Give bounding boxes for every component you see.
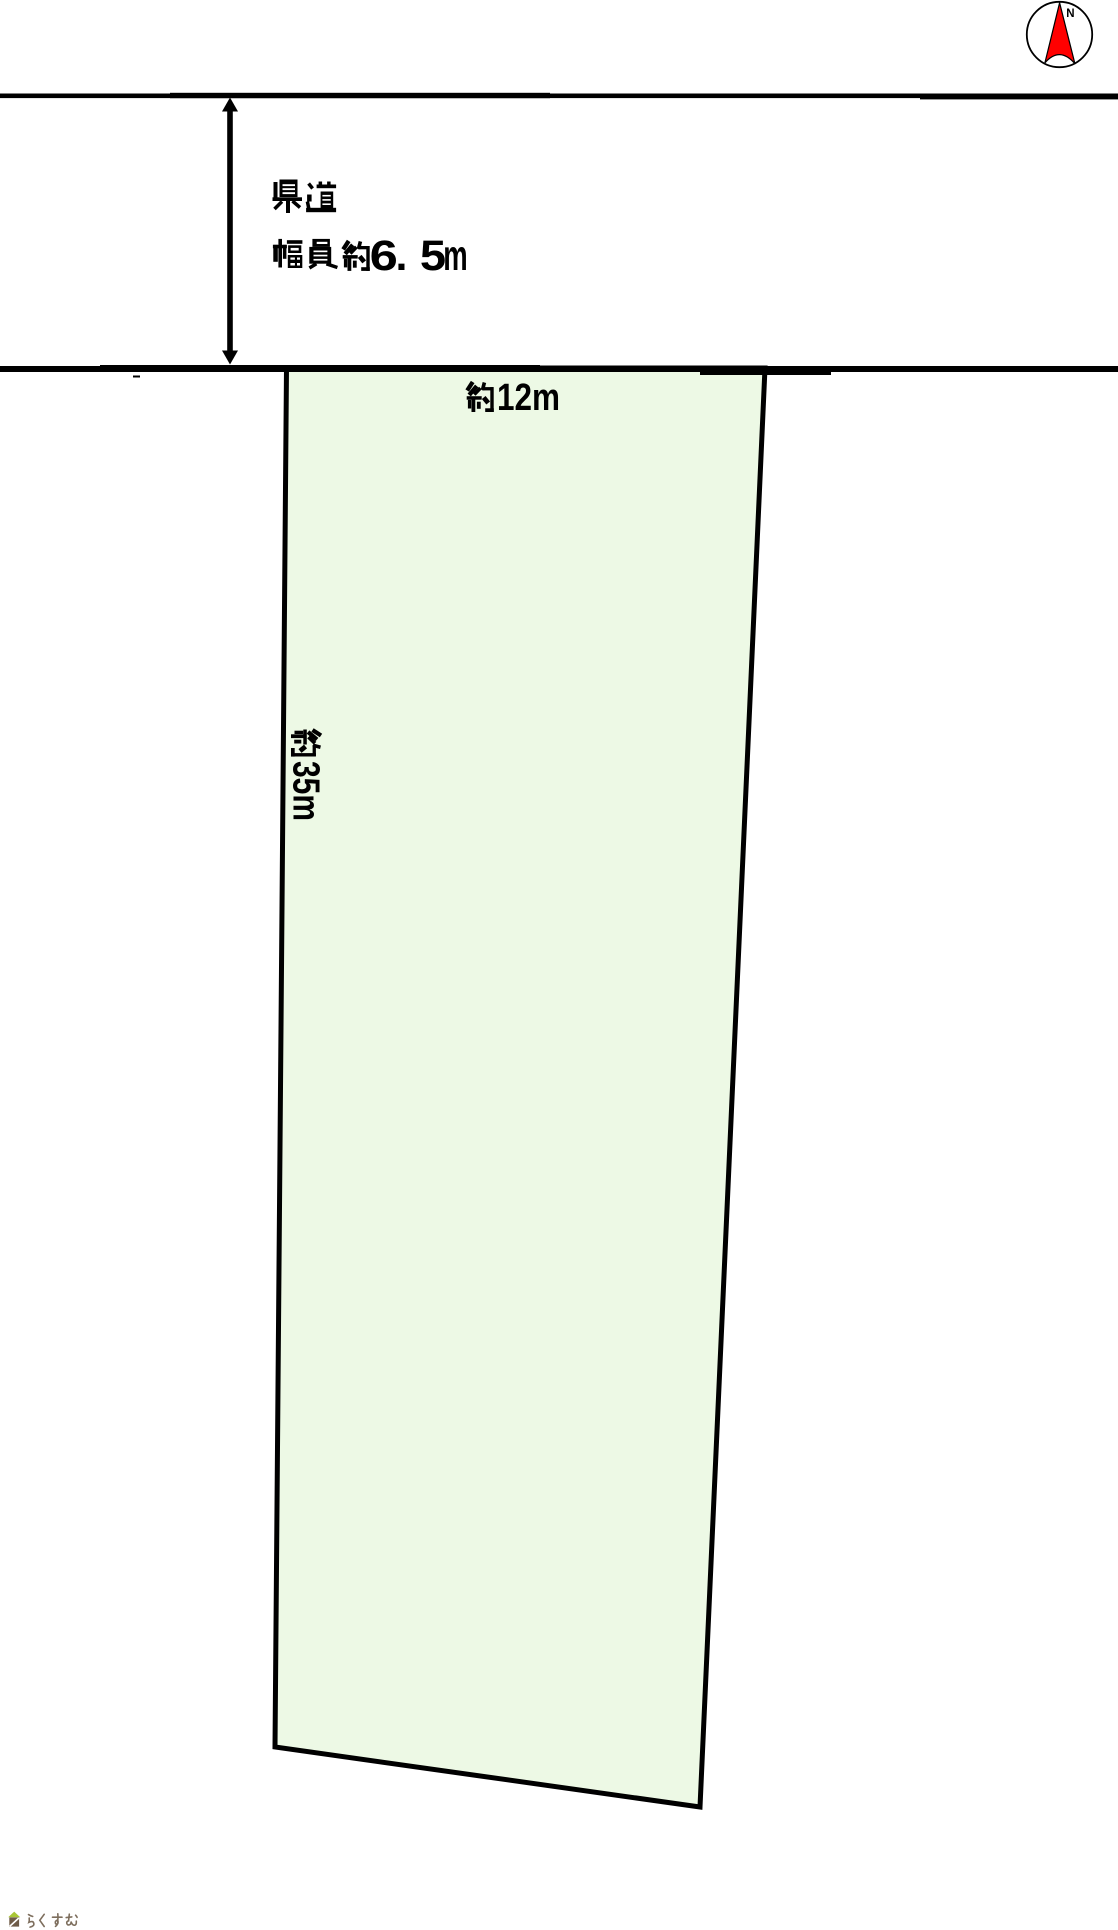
svg-text:N: N: [1066, 8, 1074, 20]
svg-text:12m: 12m: [497, 377, 560, 419]
svg-text:35m: 35m: [285, 761, 327, 821]
svg-text:m: m: [443, 232, 467, 280]
svg-text:5: 5: [420, 232, 446, 280]
svg-text:6: 6: [370, 232, 398, 280]
svg-text:.: .: [396, 232, 408, 280]
